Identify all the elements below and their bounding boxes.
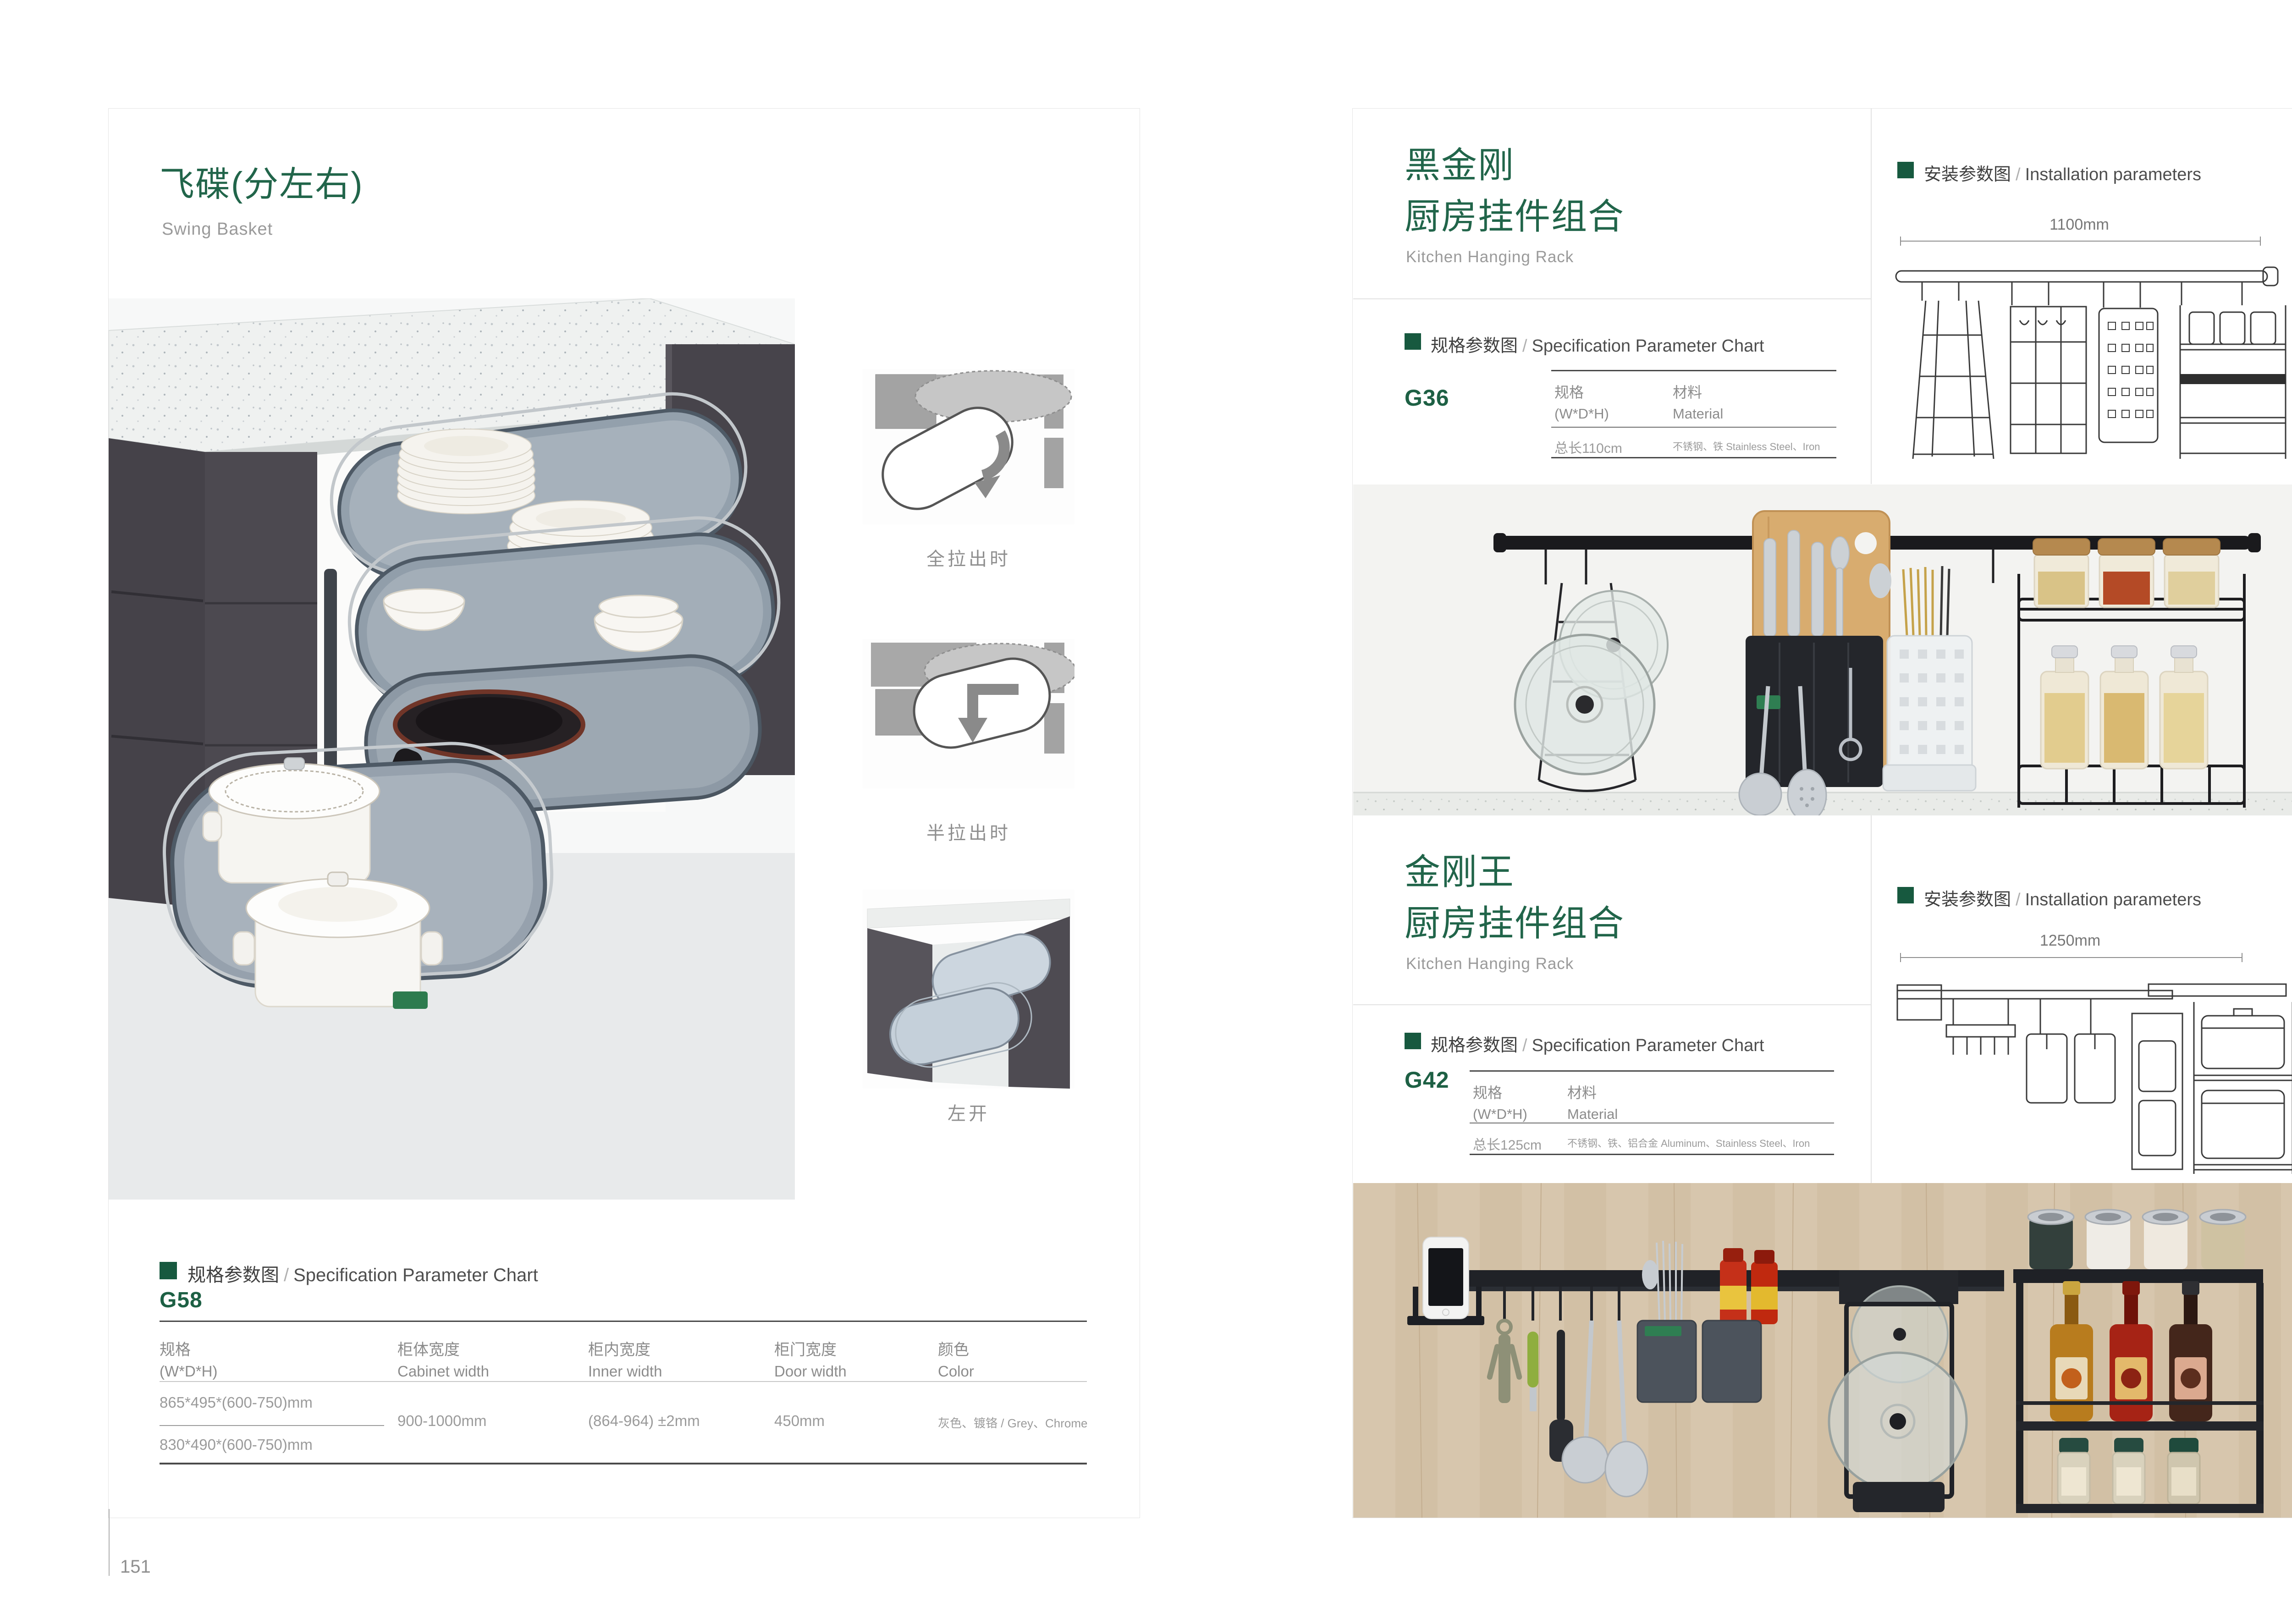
model-number: G58 bbox=[160, 1288, 203, 1313]
table-top-rule bbox=[160, 1321, 1087, 1322]
product1-title-line1: 黑金刚 bbox=[1405, 147, 1515, 183]
swing-basket-photo bbox=[109, 298, 795, 1200]
product2-title-rule bbox=[1353, 1004, 1871, 1005]
col-spec-cn: 规格 bbox=[160, 1337, 191, 1360]
section-bullet-square bbox=[160, 1262, 177, 1279]
thumb-full-pullout bbox=[863, 369, 1074, 524]
spec-header-cn: 规格参数图 bbox=[187, 1265, 279, 1285]
col-color-en: Color bbox=[938, 1363, 974, 1380]
product1-title-rule bbox=[1353, 298, 1871, 299]
table-bottom-rule bbox=[160, 1463, 1087, 1464]
product2-install-header: 安装参数图/Installation parameters bbox=[1924, 885, 2201, 910]
product1-material-value: 不锈钢、铁 Stainless Steel、Iron bbox=[1673, 439, 1820, 453]
left-folio-tick bbox=[109, 1509, 110, 1576]
spec-header-separator: / bbox=[1518, 336, 1532, 356]
col-cabinet-en: Cabinet width bbox=[397, 1363, 489, 1380]
product1-col1-cn: 规格 bbox=[1554, 381, 1584, 402]
product1-title-en: Kitchen Hanging Rack bbox=[1406, 248, 1574, 266]
left-page-number: 151 bbox=[120, 1557, 151, 1577]
dim-width-label: 1250mm bbox=[2040, 932, 2100, 949]
spec-header-en: Specification Parameter Chart bbox=[293, 1265, 538, 1285]
col-door-cn: 柜门宽度 bbox=[774, 1337, 837, 1360]
install-header-cn: 安装参数图 bbox=[1924, 890, 2011, 909]
thumb-label-full: 全拉出时 bbox=[863, 544, 1074, 571]
value-cabinet-width: 900-1000mm bbox=[397, 1412, 486, 1430]
product1-col2-en: Material bbox=[1673, 406, 1723, 422]
product2-table-top-rule bbox=[1470, 1070, 1834, 1072]
col-inner-en: Inner width bbox=[588, 1363, 662, 1380]
install-header-separator: / bbox=[2011, 890, 2025, 909]
spec-header-cn: 规格参数图 bbox=[1431, 336, 1518, 356]
col-cabinet-cn: 柜体宽度 bbox=[397, 1337, 460, 1360]
product2-install-diagram: 1250mm 430mm bbox=[1894, 917, 2292, 1183]
product1-install-header: 安装参数图/Installation parameters bbox=[1924, 160, 2201, 185]
install-header-cn: 安装参数图 bbox=[1924, 165, 2011, 184]
section1-vertical-divider bbox=[1871, 109, 1872, 484]
product2-photo bbox=[1353, 1183, 2292, 1518]
product2-table-mid-rule bbox=[1470, 1123, 1834, 1123]
product2-col2-cn: 材料 bbox=[1567, 1081, 1597, 1102]
product2-table-bottom-rule bbox=[1470, 1154, 1834, 1155]
left-page-title-cn: 飞碟(分左右) bbox=[160, 167, 364, 202]
product1-col1-en: (W*D*H) bbox=[1554, 406, 1609, 422]
thumb-label-half: 半拉出时 bbox=[863, 818, 1074, 845]
col-color-cn: 颜色 bbox=[938, 1337, 969, 1360]
product1-photo bbox=[1353, 484, 2292, 815]
value-color: 灰色、镀铬 / Grey、Chrome bbox=[938, 1414, 1088, 1431]
product2-title-en: Kitchen Hanging Rack bbox=[1406, 955, 1574, 973]
value-door-width: 450mm bbox=[774, 1412, 825, 1430]
value-spec-a: 865*495*(600-750)mm bbox=[160, 1394, 313, 1411]
product2-model: G42 bbox=[1405, 1067, 1449, 1093]
product2-col1-cn: 规格 bbox=[1473, 1081, 1502, 1102]
right-page: 黑金刚 厨房挂件组合 Kitchen Hanging Rack 规格参数图/Sp… bbox=[1352, 108, 2292, 1518]
product1-table-bottom-rule bbox=[1551, 457, 1836, 458]
product2-size-value: 总长125cm bbox=[1473, 1134, 1542, 1154]
thumb-left-open bbox=[863, 890, 1074, 1089]
product2-title-line1: 金刚王 bbox=[1405, 854, 1515, 890]
product1-install-diagram: 1100mm 420mm bbox=[1894, 202, 2292, 477]
product1-table-mid-rule bbox=[1551, 427, 1836, 428]
thumb-label-left-open: 左开 bbox=[863, 1099, 1074, 1125]
dim-width-label: 1100mm bbox=[2050, 216, 2109, 233]
section-bullet-square bbox=[1897, 887, 1914, 903]
product2-title-line2: 厨房挂件组合 bbox=[1405, 905, 1625, 941]
product1-size-value: 总长110cm bbox=[1554, 437, 1622, 457]
col-door-en: Door width bbox=[774, 1363, 847, 1380]
thumb-half-pullout bbox=[863, 639, 1074, 788]
spec-header-separator: / bbox=[1518, 1036, 1532, 1055]
product2-col2-en: Material bbox=[1567, 1106, 1618, 1123]
section-bullet-square bbox=[1405, 1033, 1421, 1049]
product1-model: G36 bbox=[1405, 385, 1449, 411]
col-inner-cn: 柜内宽度 bbox=[588, 1337, 650, 1360]
product1-col2-cn: 材料 bbox=[1673, 381, 1702, 402]
spec-header-cn: 规格参数图 bbox=[1431, 1036, 1518, 1055]
section-bullet-square bbox=[1897, 162, 1914, 178]
section-bullet-square bbox=[1405, 333, 1421, 350]
product1-title-line2: 厨房挂件组合 bbox=[1405, 198, 1625, 234]
product1-spec-header: 规格参数图/Specification Parameter Chart bbox=[1431, 331, 1764, 357]
col-spec-en: (W*D*H) bbox=[160, 1363, 217, 1380]
spec-divider-short bbox=[160, 1425, 384, 1426]
value-inner-width: (864-964) ±2mm bbox=[588, 1412, 700, 1430]
install-header-en: Installation parameters bbox=[2025, 165, 2201, 184]
product1-table-top-rule bbox=[1551, 370, 1836, 371]
product2-material-value: 不锈钢、铁、铝合金 Aluminum、Stainless Steel、Iron bbox=[1567, 1135, 1810, 1150]
spec-section-header: 规格参数图/Specification Parameter Chart bbox=[187, 1260, 538, 1287]
left-page-title-en: Swing Basket bbox=[162, 220, 273, 239]
spec-header-en: Specification Parameter Chart bbox=[1532, 336, 1764, 356]
product2-spec-header: 规格参数图/Specification Parameter Chart bbox=[1431, 1031, 1764, 1056]
product2-col1-en: (W*D*H) bbox=[1473, 1106, 1527, 1123]
left-page: 飞碟(分左右) Swing Basket bbox=[108, 108, 1140, 1518]
table-header-divider bbox=[160, 1381, 1087, 1382]
spec-header-separator: / bbox=[279, 1265, 293, 1285]
section2-vertical-divider bbox=[1871, 815, 1872, 1183]
value-spec-b: 830*490*(600-750)mm bbox=[160, 1436, 313, 1453]
spec-header-en: Specification Parameter Chart bbox=[1532, 1036, 1764, 1055]
install-header-separator: / bbox=[2011, 165, 2025, 184]
catalog-spread: 飞碟(分左右) Swing Basket bbox=[0, 0, 2292, 1624]
install-header-en: Installation parameters bbox=[2025, 890, 2201, 909]
